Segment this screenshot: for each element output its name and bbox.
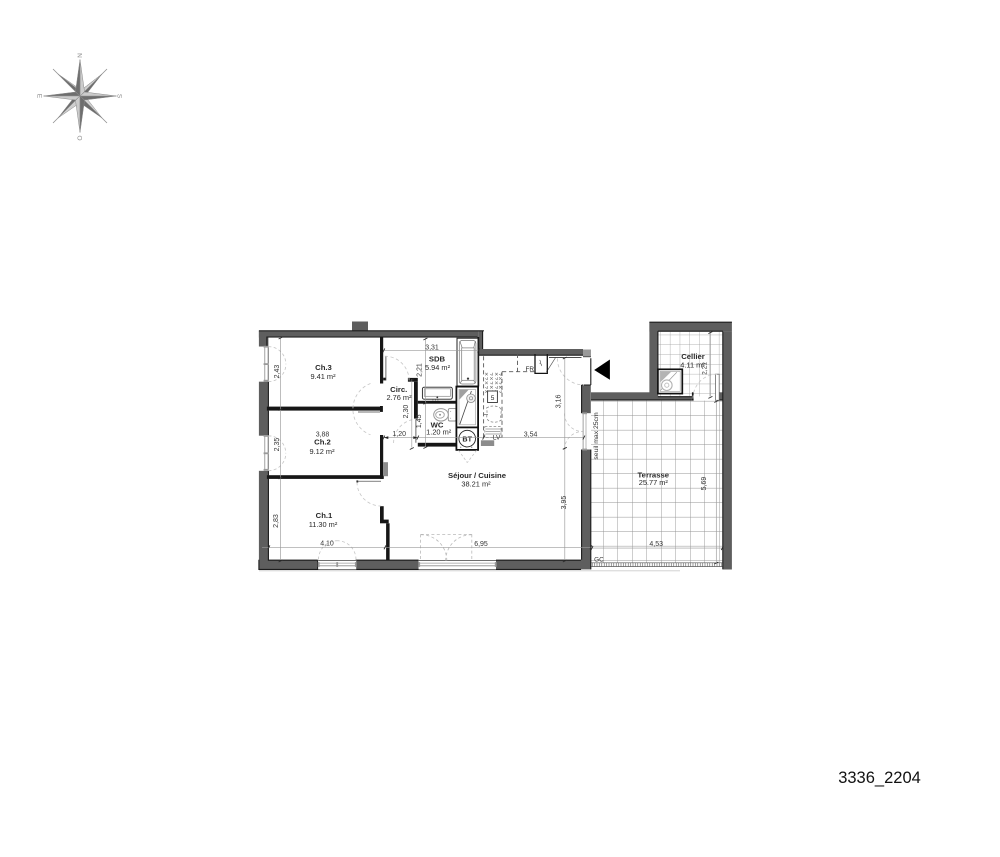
svg-text:38.21 m²: 38.21 m² — [461, 479, 491, 488]
svg-text:N: N — [76, 53, 83, 58]
svg-text:seuil max 25cm: seuil max 25cm — [593, 412, 600, 460]
svg-text:4,53: 4,53 — [649, 541, 663, 548]
svg-text:LV: LV — [493, 435, 501, 442]
svg-text:5,69: 5,69 — [701, 477, 708, 491]
svg-text:2,43: 2,43 — [274, 365, 281, 379]
svg-text:GC: GC — [594, 557, 604, 564]
svg-text:2,30: 2,30 — [403, 405, 410, 419]
svg-text:3336_2204: 3336_2204 — [838, 769, 921, 787]
svg-text:1,20: 1,20 — [392, 431, 406, 438]
svg-text:2,35: 2,35 — [274, 438, 281, 452]
svg-text:11.30 m²: 11.30 m² — [309, 520, 338, 529]
svg-text:3,88: 3,88 — [316, 432, 330, 439]
svg-text:2.76 m²: 2.76 m² — [386, 393, 412, 402]
svg-text:O: O — [76, 135, 83, 140]
svg-text:3,95: 3,95 — [561, 496, 568, 510]
svg-text:1,45: 1,45 — [416, 414, 423, 428]
svg-text:Ch.3: Ch.3 — [315, 363, 332, 372]
svg-text:E: E — [36, 94, 43, 99]
svg-text:4,10: 4,10 — [320, 541, 334, 548]
svg-text:S: S — [116, 94, 123, 99]
svg-text:3,31: 3,31 — [425, 345, 439, 352]
svg-text:BT: BT — [462, 434, 472, 443]
svg-text:Ch.2: Ch.2 — [314, 438, 331, 447]
svg-text:9.12 m²: 9.12 m² — [309, 447, 335, 456]
svg-text:6,95: 6,95 — [474, 541, 488, 548]
svg-text:1.20 m²: 1.20 m² — [426, 428, 452, 437]
svg-text:2,21: 2,21 — [701, 362, 708, 375]
svg-text:5.94 m²: 5.94 m² — [425, 363, 451, 372]
svg-text:FR: FR — [526, 366, 535, 373]
svg-text:3,54: 3,54 — [524, 432, 538, 439]
svg-text:Ch.1: Ch.1 — [316, 511, 333, 520]
svg-text:25.77 m²: 25.77 m² — [639, 478, 669, 487]
svg-text:3,16: 3,16 — [556, 394, 563, 408]
svg-text:2,83: 2,83 — [273, 514, 280, 528]
svg-text:9.41 m²: 9.41 m² — [310, 372, 336, 381]
svg-text:5: 5 — [491, 395, 495, 402]
svg-text:2,21: 2,21 — [417, 363, 424, 377]
